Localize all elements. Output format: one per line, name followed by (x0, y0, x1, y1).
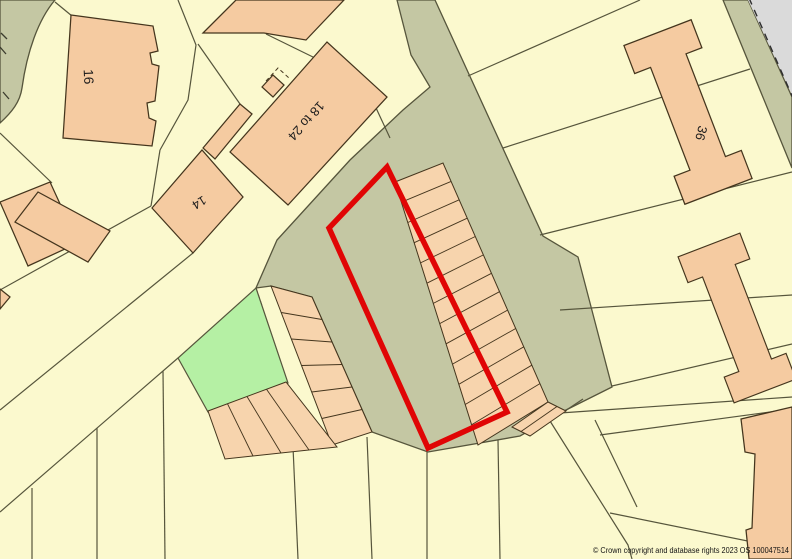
building-16 (63, 15, 159, 146)
os-map: 16 18 to 24 14 36 © Crown copyright and … (0, 0, 792, 559)
label-building-16: 16 (81, 69, 97, 85)
map-canvas: 16 18 to 24 14 36 © Crown copyright and … (0, 0, 792, 559)
os-attribution: © Crown copyright and database rights 20… (593, 545, 789, 555)
